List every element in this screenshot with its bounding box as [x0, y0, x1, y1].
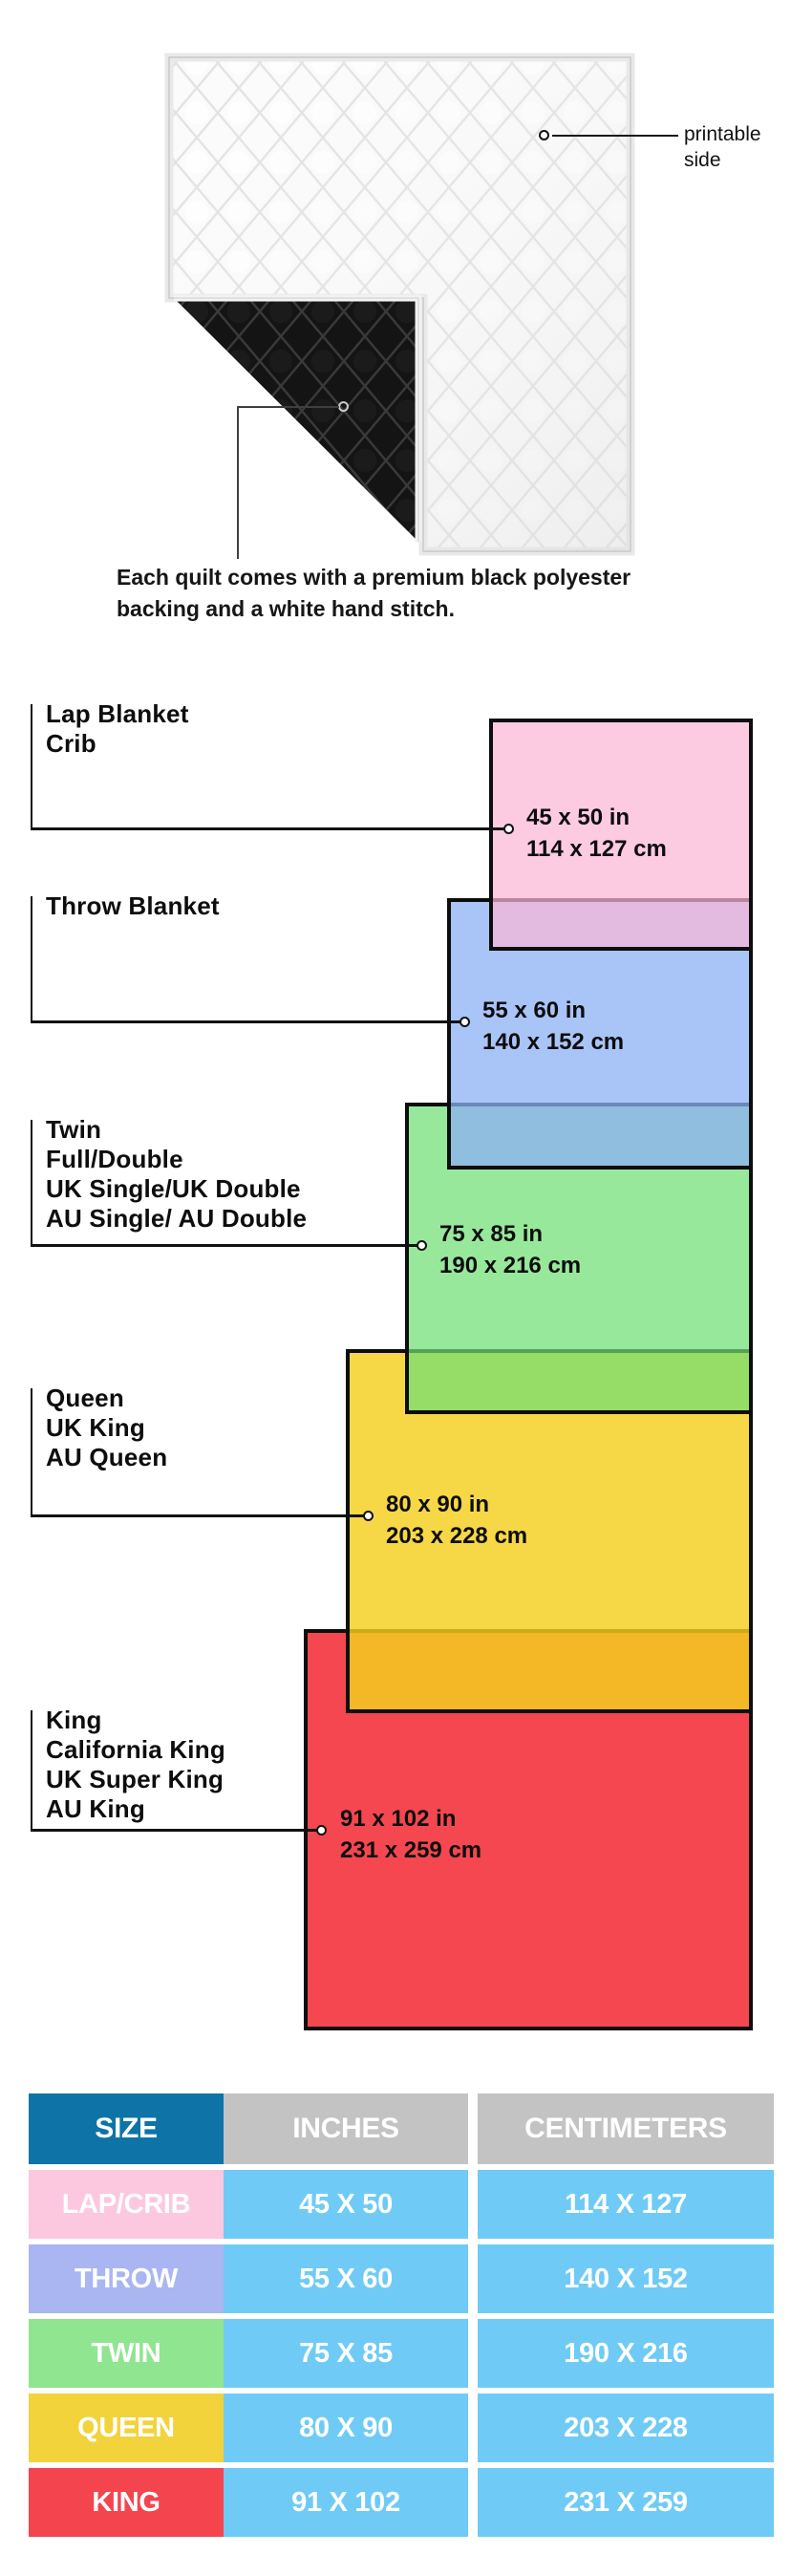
row-centimeters: 203 X 228 [478, 2394, 774, 2462]
table-header-row: SIZE INCHES CENTIMETERS [29, 2093, 774, 2164]
leader-lap-crib [31, 827, 503, 830]
label-king: King California King UK Super King AU Ki… [46, 1706, 225, 1824]
label-lap-crib: Lap Blanket Crib [46, 699, 189, 759]
marker-throw [460, 1017, 470, 1027]
table-row-throw: THROW 55 X 60 140 X 152 [29, 2244, 774, 2313]
leader-queen [31, 1514, 364, 1517]
row-inches: 75 X 85 [224, 2319, 468, 2388]
printable-side-marker [539, 130, 549, 140]
black-backing-marker [338, 401, 349, 412]
row-centimeters: 231 X 259 [478, 2468, 774, 2537]
row-centimeters: 190 X 216 [478, 2319, 774, 2388]
black-backing-leader-horizontal [237, 406, 339, 408]
measure-throw: 55 x 60 in 140 x 152 cm [482, 995, 624, 1058]
row-centimeters: 140 X 152 [478, 2244, 774, 2313]
marker-twin [417, 1240, 427, 1251]
label-throw: Throw Blanket [46, 891, 220, 921]
table-row-lap-crib: LAP/CRIB 45 X 50 114 X 127 [29, 2170, 774, 2239]
quilt-back-black-fold [174, 298, 418, 542]
black-backing-leader-vertical [237, 406, 239, 559]
printable-side-label: printable side [684, 121, 772, 173]
marker-lap-crib [503, 824, 514, 834]
measure-king: 91 x 102 in 231 x 259 cm [340, 1803, 481, 1866]
row-centimeters: 114 X 127 [478, 2170, 774, 2239]
measure-lap-crib: 45 x 50 in 114 x 127 cm [526, 802, 667, 865]
row-inches: 80 X 90 [224, 2394, 468, 2462]
printable-side-leader-line [552, 135, 678, 137]
table-row-queen: QUEEN 80 X 90 203 X 228 [29, 2394, 774, 2462]
row-size-label: KING [29, 2468, 224, 2537]
label-queen: Queen UK King AU Queen [46, 1384, 167, 1472]
leader-throw [31, 1020, 460, 1023]
row-size-label: THROW [29, 2244, 224, 2313]
bracket-queen [31, 1388, 32, 1516]
row-size-label: QUEEN [29, 2394, 224, 2462]
bracket-throw [31, 896, 32, 1022]
row-size-label: LAP/CRIB [29, 2170, 224, 2239]
header-size: SIZE [29, 2093, 224, 2164]
leader-twin [31, 1244, 417, 1247]
table-row-twin: TWIN 75 X 85 190 X 216 [29, 2319, 774, 2388]
bracket-lap-crib [31, 704, 32, 829]
measure-twin: 75 x 85 in 190 x 216 cm [439, 1218, 581, 1281]
measure-queen: 80 x 90 in 203 x 228 cm [386, 1489, 527, 1552]
backing-caption: Each quilt comes with a premium black po… [117, 562, 728, 625]
marker-king [316, 1825, 327, 1835]
size-table: SIZE INCHES CENTIMETERS LAP/CRIB 45 X 50… [29, 2093, 774, 2543]
marker-queen [363, 1511, 374, 1521]
table-row-king: KING 91 X 102 231 X 259 [29, 2468, 774, 2537]
row-inches: 55 X 60 [224, 2244, 468, 2313]
bracket-king [31, 1710, 32, 1831]
header-centimeters: CENTIMETERS [478, 2093, 774, 2164]
leader-king [31, 1829, 317, 1832]
row-inches: 45 X 50 [224, 2170, 468, 2239]
bracket-twin [31, 1120, 32, 1246]
header-inches: INCHES [224, 2093, 468, 2164]
quilt-illustration [134, 38, 650, 573]
row-size-label: TWIN [29, 2319, 224, 2388]
label-twin: Twin Full/Double UK Single/UK Double AU … [46, 1115, 307, 1234]
size-chart-infographic: printable side Each quilt comes with a p… [0, 0, 791, 2576]
row-inches: 91 X 102 [224, 2468, 468, 2537]
